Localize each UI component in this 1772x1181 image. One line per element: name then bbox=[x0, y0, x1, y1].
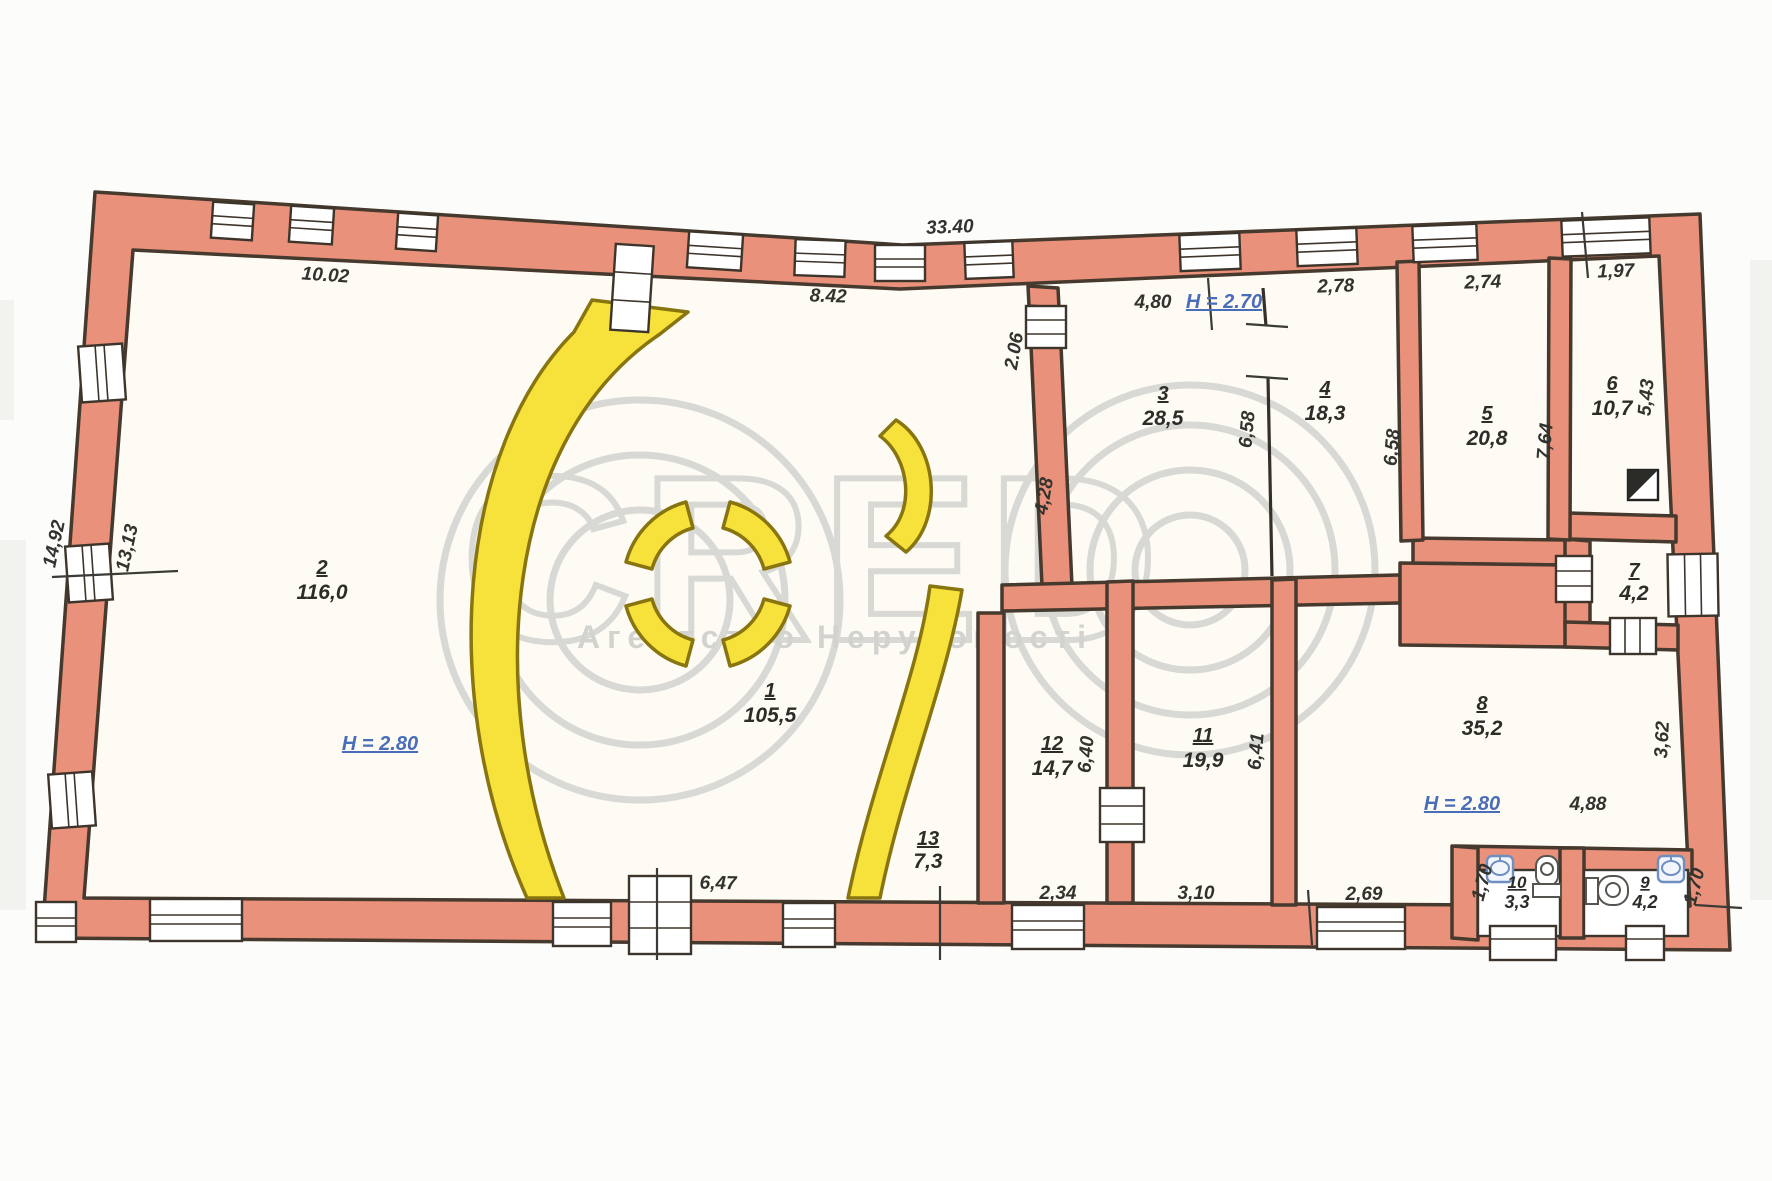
dim-room11-bottom: 3,10 bbox=[1178, 883, 1215, 904]
room-1-area: 105,5 bbox=[744, 704, 797, 727]
window bbox=[289, 206, 334, 245]
wall-chunk-room7-left-mass bbox=[1400, 563, 1567, 647]
room-6-area: 10,7 bbox=[1592, 397, 1634, 420]
room-12-number: 12 bbox=[1041, 733, 1063, 755]
room-2-number: 2 bbox=[315, 557, 327, 579]
wall-room6-bottom bbox=[1568, 513, 1676, 542]
room-5-area: 20,8 bbox=[1466, 427, 1508, 450]
wall-room11-right bbox=[1272, 579, 1296, 905]
height-room2: H = 2.80 bbox=[342, 733, 418, 755]
dim-room8-side: 3,62 bbox=[1651, 720, 1674, 758]
dim-top-total: 33.40 bbox=[926, 216, 975, 239]
room-5-number: 5 bbox=[1481, 403, 1493, 425]
wall-room3-left-stub bbox=[1028, 286, 1059, 308]
room-3-number: 3 bbox=[1157, 383, 1168, 405]
dim-room3-side: 6,58 bbox=[1235, 410, 1259, 449]
wall-room12-left bbox=[978, 613, 1004, 903]
window bbox=[48, 772, 96, 829]
door bbox=[1100, 788, 1144, 842]
height-room3: H = 2.70 bbox=[1186, 291, 1262, 313]
window bbox=[1012, 905, 1084, 949]
room-10-area: 3,3 bbox=[1504, 892, 1529, 912]
wall-room12-room11 bbox=[1107, 581, 1133, 903]
sink-icon bbox=[1658, 856, 1684, 882]
room-7-area: 4,2 bbox=[1618, 582, 1649, 605]
dim-room4-top: 2,78 bbox=[1316, 275, 1355, 297]
window bbox=[783, 903, 835, 947]
room-8-number: 8 bbox=[1476, 693, 1488, 715]
dim-room4-side: 6,58 bbox=[1380, 428, 1404, 467]
door bbox=[1556, 556, 1592, 602]
window bbox=[65, 544, 113, 603]
room-9-area: 4,2 bbox=[1631, 892, 1657, 912]
room-7-number: 7 bbox=[1628, 560, 1640, 582]
window bbox=[78, 344, 126, 403]
window bbox=[1179, 233, 1240, 271]
room-12-area: 14,7 bbox=[1032, 757, 1074, 780]
room-8-area: 35,2 bbox=[1462, 717, 1503, 740]
room-11-area: 19,9 bbox=[1183, 749, 1224, 772]
dim-room11-side: 6,41 bbox=[1244, 732, 1268, 771]
floor-plan-svg: CRED Агентство Нерухомості bbox=[0, 0, 1772, 1181]
dim-room12-bottom: 2,34 bbox=[1039, 883, 1077, 904]
room-1-number: 1 bbox=[764, 680, 775, 702]
room-4-area: 18,3 bbox=[1305, 402, 1346, 425]
floor-plan-page: CRED Агентство Нерухомості bbox=[0, 0, 1772, 1181]
door bbox=[1490, 926, 1556, 960]
dim-room6-side: 5,43 bbox=[1634, 378, 1658, 417]
room-11-number: 11 bbox=[1193, 725, 1214, 747]
dim-room12-side: 6,40 bbox=[1074, 735, 1098, 774]
door bbox=[629, 876, 691, 954]
window bbox=[553, 902, 611, 946]
window bbox=[36, 902, 76, 942]
door bbox=[1610, 618, 1656, 654]
height-room8: H = 2.80 bbox=[1424, 793, 1500, 815]
room-10-number: 10 bbox=[1508, 873, 1527, 892]
door-exterior bbox=[1667, 554, 1718, 617]
window bbox=[1296, 228, 1357, 266]
window bbox=[1412, 224, 1477, 262]
room-13-number: 13 bbox=[917, 828, 939, 850]
window bbox=[875, 245, 925, 281]
room-6-number: 6 bbox=[1606, 373, 1618, 395]
vent-icon bbox=[1628, 470, 1658, 500]
dim-top-center: 8.42 bbox=[809, 285, 847, 307]
dim-room8-bottom: 4,88 bbox=[1569, 794, 1607, 815]
room-3-area: 28,5 bbox=[1142, 407, 1184, 430]
dim-room6-top: 1,97 bbox=[1597, 260, 1636, 282]
room-2-area: 116,0 bbox=[297, 581, 348, 604]
door bbox=[1026, 306, 1066, 348]
room-9-number: 9 bbox=[1640, 873, 1650, 892]
dim-top-left: 10.02 bbox=[301, 263, 350, 287]
room-13-area: 7,3 bbox=[913, 850, 943, 873]
dim-room5-side: 7,64 bbox=[1533, 422, 1557, 461]
window bbox=[964, 241, 1013, 279]
dim-corridor-bottom: 2,69 bbox=[1345, 884, 1383, 905]
dim-room5-top: 2,74 bbox=[1463, 271, 1502, 293]
window bbox=[1317, 907, 1405, 949]
window bbox=[1561, 217, 1650, 256]
dim-bottom-room1: 6,47 bbox=[699, 873, 738, 895]
room-4-number: 4 bbox=[1318, 378, 1330, 400]
toilet-icon bbox=[1533, 856, 1561, 897]
window bbox=[396, 213, 438, 252]
door bbox=[610, 244, 653, 332]
wall-bath-divider bbox=[1560, 848, 1584, 938]
toilet-icon bbox=[1586, 876, 1628, 905]
window bbox=[150, 899, 242, 941]
door bbox=[1626, 926, 1664, 960]
dim-room3-top: 4,80 bbox=[1134, 292, 1172, 313]
window bbox=[211, 202, 254, 241]
window bbox=[687, 231, 743, 270]
wall-room4-right bbox=[1397, 261, 1423, 541]
wall-room5-right bbox=[1548, 258, 1571, 540]
window bbox=[794, 239, 845, 277]
wall-room5-bottom bbox=[1413, 538, 1567, 565]
